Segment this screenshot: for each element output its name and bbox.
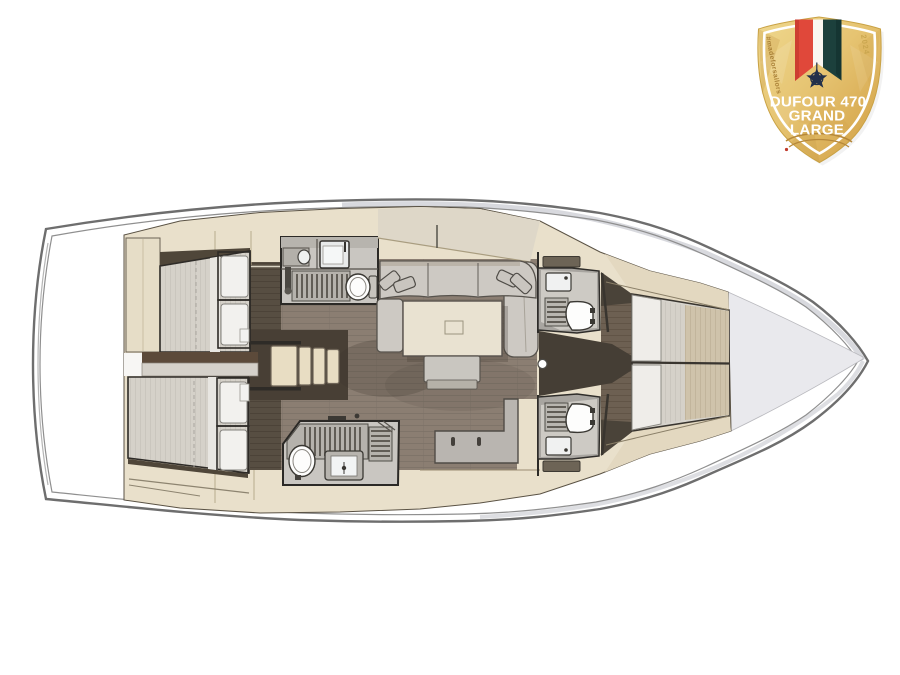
- svg-text:LARGE: LARGE: [790, 122, 844, 139]
